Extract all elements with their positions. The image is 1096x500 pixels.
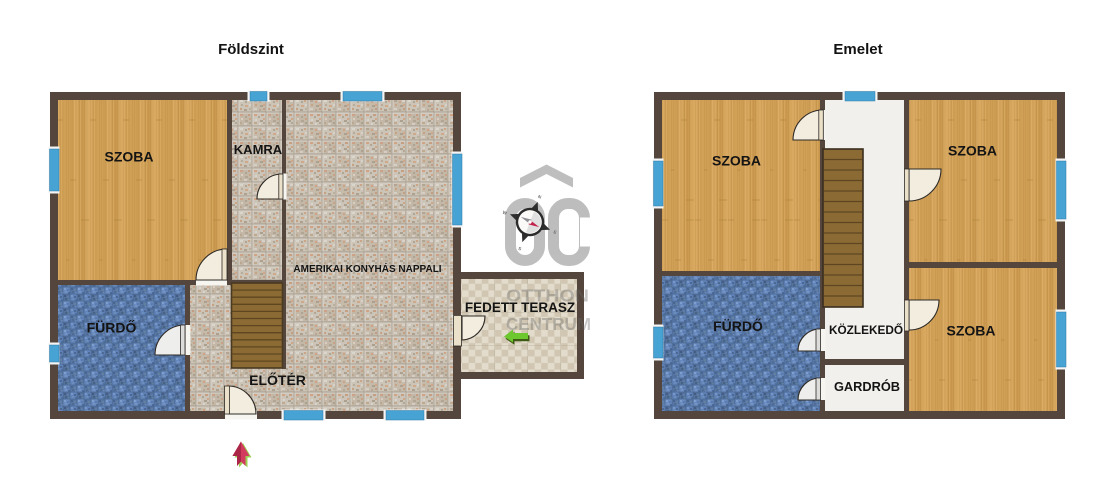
svg-text:GARDRÓB: GARDRÓB — [834, 379, 900, 394]
svg-text:SZOBA: SZOBA — [712, 153, 761, 169]
svg-text:AMERIKAI KONYHÁS NAPPALI: AMERIKAI KONYHÁS NAPPALI — [293, 262, 441, 275]
svg-text:N: N — [537, 194, 542, 200]
svg-text:Emelet: Emelet — [833, 41, 882, 58]
svg-text:SZOBA: SZOBA — [948, 143, 997, 159]
svg-text:FÜRDŐ: FÜRDŐ — [713, 317, 763, 334]
svg-text:SZOBA: SZOBA — [947, 323, 996, 339]
svg-text:CENTRUM: CENTRUM — [506, 314, 591, 334]
svg-text:KAMRA: KAMRA — [234, 142, 283, 157]
svg-text:S: S — [517, 246, 522, 252]
svg-text:FEDETT TERASZ: FEDETT TERASZ — [465, 300, 575, 315]
svg-text:FÜRDŐ: FÜRDŐ — [87, 319, 137, 336]
svg-text:KÖZLEKEDŐ: KÖZLEKEDŐ — [829, 323, 903, 337]
svg-text:ELŐTÉR: ELŐTÉR — [249, 371, 306, 388]
svg-text:Földszint: Földszint — [218, 41, 284, 58]
svg-text:SZOBA: SZOBA — [105, 149, 154, 165]
